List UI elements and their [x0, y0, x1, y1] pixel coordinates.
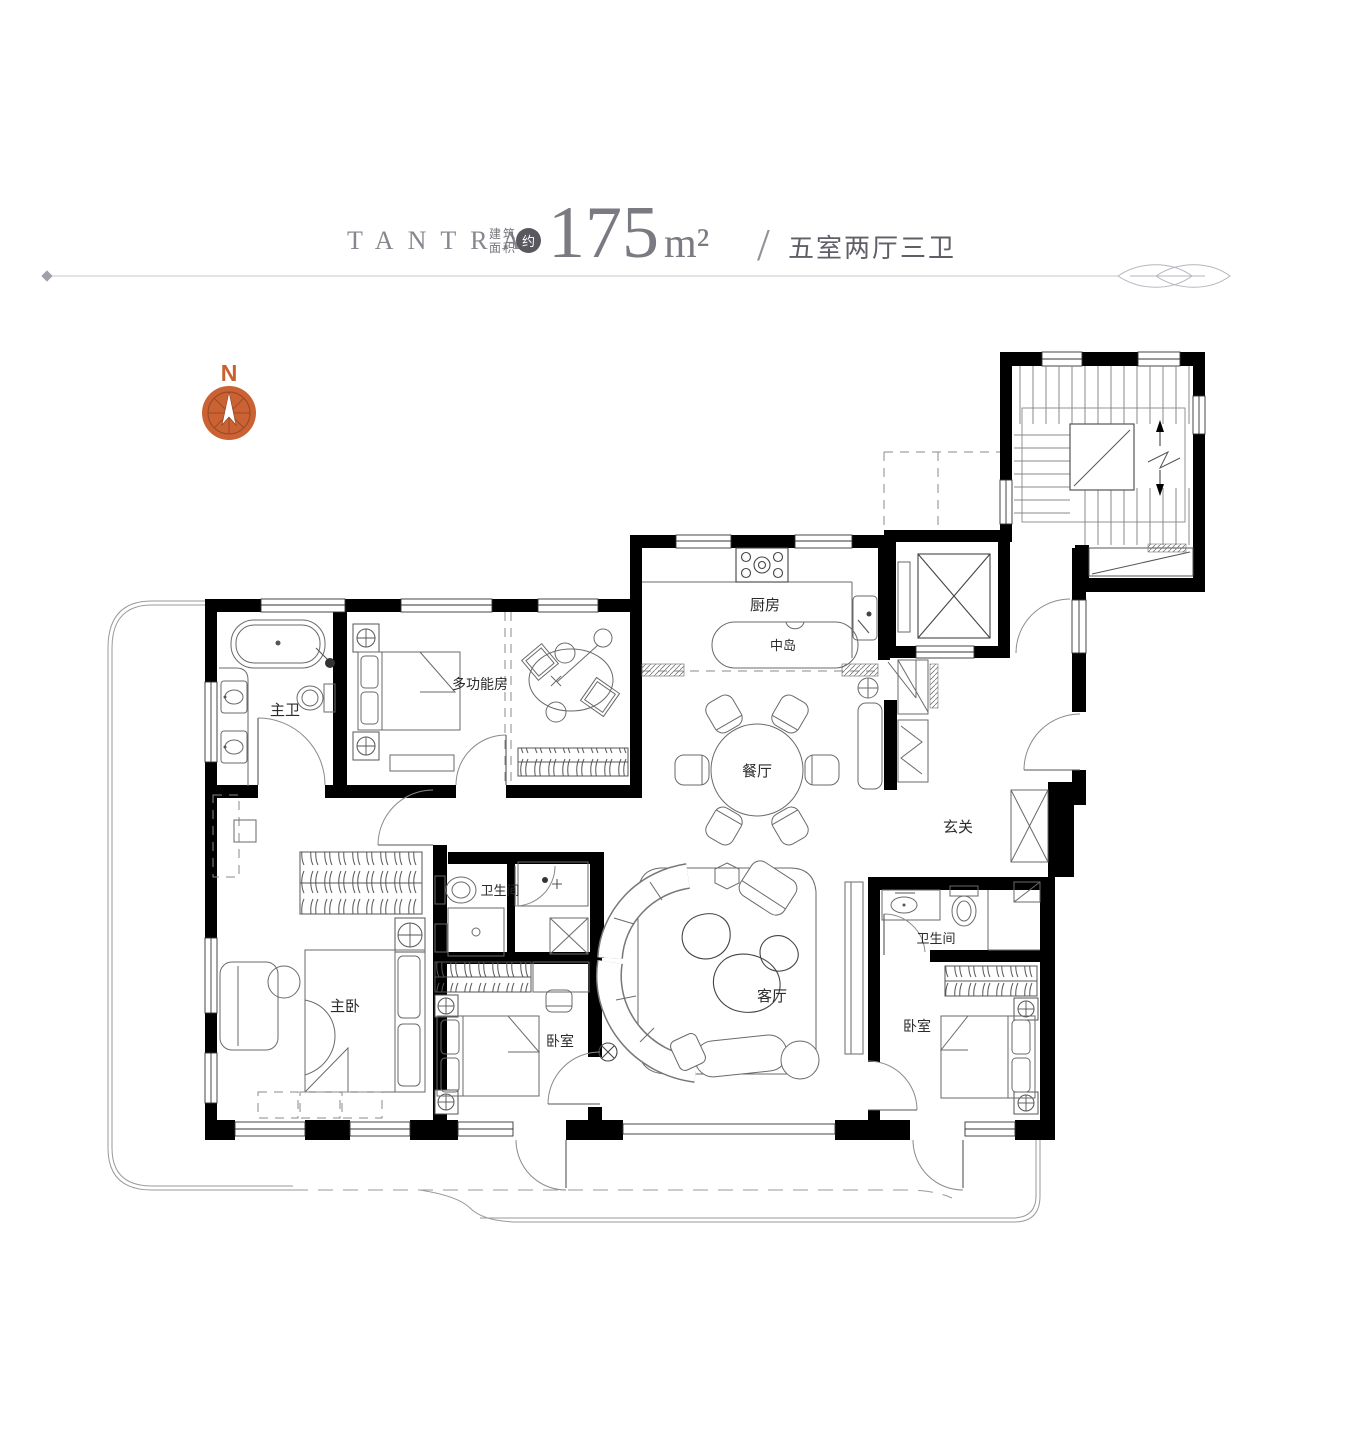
armchair-icon	[735, 857, 800, 919]
label-bedroom-mid: 卧室	[546, 1033, 574, 1050]
sideboard	[858, 703, 882, 789]
stove-icon	[736, 548, 788, 582]
pantry-door	[888, 660, 916, 698]
side-table	[715, 863, 739, 889]
label-foyer: 玄关	[943, 818, 973, 836]
sink-icon	[221, 681, 247, 713]
elevator	[898, 554, 990, 638]
label-master-bath: 主卫	[270, 701, 300, 719]
multi-room-furniture	[353, 624, 628, 776]
label-dining: 餐厅	[742, 762, 772, 780]
entry-door-pocket	[1072, 600, 1086, 653]
bed-icon	[358, 652, 460, 730]
right-bath-fixtures	[882, 882, 1040, 950]
label-living-room: 客厅	[757, 987, 787, 1005]
vanity-sink-icon	[882, 890, 940, 920]
ornament-icon	[1118, 265, 1230, 288]
label-bath-mid: 卫生间	[480, 884, 519, 899]
wardrobe	[435, 962, 531, 992]
bedroom-right-furniture	[941, 966, 1038, 1114]
living-room-furniture	[599, 857, 863, 1079]
compass: N	[202, 360, 256, 440]
coffee-table	[760, 936, 798, 972]
floorplan-drawing: N	[0, 0, 1356, 1440]
bed-icon	[437, 1016, 539, 1096]
tv-console	[845, 882, 863, 1054]
walk-in-closet	[300, 852, 422, 914]
master-bed-icon	[305, 950, 425, 1092]
master-bedroom-furniture	[220, 820, 425, 1118]
label-master-bedroom: 主卧	[330, 997, 360, 1015]
linen-box	[550, 918, 588, 954]
label-bath-right: 卫生间	[916, 932, 955, 947]
bed-icon	[941, 1016, 1035, 1098]
label-multi-room: 多功能房	[452, 676, 508, 693]
floorplan-page: TANTRA 建筑 面积 约 175 m² / 五室两厅三卫	[0, 0, 1356, 1440]
label-kitchen: 厨房	[750, 596, 780, 614]
bathtub-icon	[231, 620, 335, 668]
living-slider-window	[623, 1124, 835, 1134]
toilet-icon	[950, 886, 978, 926]
label-bedroom-right: 卧室	[903, 1018, 931, 1035]
header-divider	[41, 265, 1230, 288]
wardrobe	[945, 966, 1037, 996]
kitchen-sink-icon	[853, 596, 877, 640]
dining-set	[675, 692, 882, 848]
linen-closet	[1011, 790, 1048, 862]
stairwell	[1014, 366, 1193, 576]
coffee-table	[682, 914, 730, 959]
sink-icon	[221, 731, 247, 763]
toilet-icon	[297, 684, 335, 712]
label-island: 中岛	[770, 638, 796, 654]
compass-n-label: N	[221, 360, 238, 386]
wardrobe	[518, 748, 628, 776]
elevator-door	[916, 646, 974, 658]
laundry-cabinet	[518, 862, 588, 906]
